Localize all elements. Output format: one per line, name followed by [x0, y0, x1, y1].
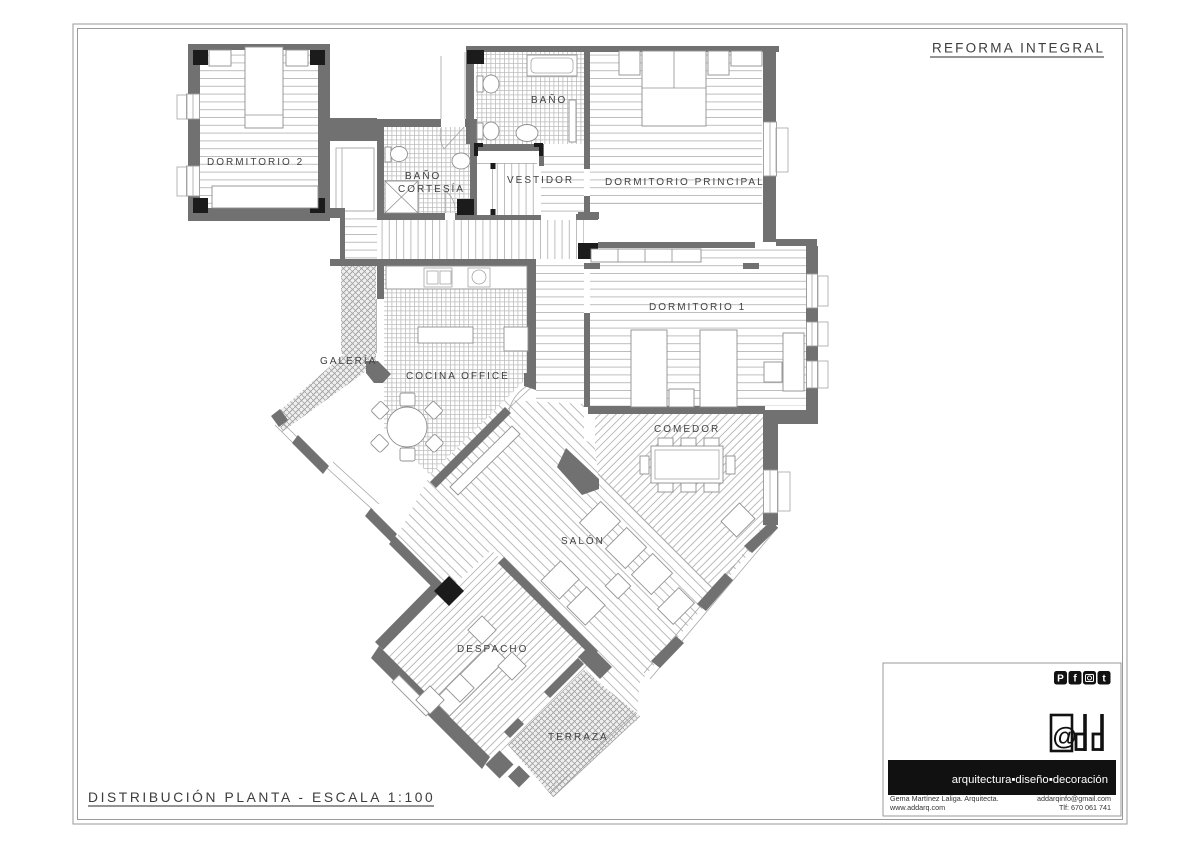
svg-text:COMEDOR: COMEDOR	[654, 424, 720, 435]
svg-text:TERRAZA: TERRAZA	[548, 732, 609, 743]
svg-text:arquitectura▪diseño▪decoración: arquitectura▪diseño▪decoración	[952, 774, 1108, 786]
svg-text:DORMITORIO 2: DORMITORIO 2	[207, 157, 304, 168]
svg-text:addarqinfo@gmail.com: addarqinfo@gmail.com	[1037, 794, 1111, 803]
svg-text:GALERÍA: GALERÍA	[320, 354, 377, 367]
svg-text:Tlf: 670 061 741: Tlf: 670 061 741	[1059, 803, 1111, 812]
svg-text:DESPACHO: DESPACHO	[457, 644, 528, 655]
svg-text:BAÑO: BAÑO	[531, 93, 567, 106]
svg-text:DORMITORIO PRINCIPAL: DORMITORIO PRINCIPAL	[605, 177, 765, 188]
svg-text:DISTRIBUCIÓN PLANTA - ESCALA 1: DISTRIBUCIÓN PLANTA - ESCALA 1:100	[88, 789, 435, 805]
svg-text:BAÑO: BAÑO	[405, 169, 441, 182]
svg-text:CORTESÍA: CORTESÍA	[398, 182, 465, 195]
svg-text:DORMITORIO 1: DORMITORIO 1	[649, 302, 746, 313]
svg-text:SALÓN: SALÓN	[561, 534, 605, 547]
svg-text:VESTIDOR: VESTIDOR	[507, 175, 574, 186]
svg-text:REFORMA INTEGRAL: REFORMA INTEGRAL	[932, 41, 1105, 56]
svg-text:www.addarq.com: www.addarq.com	[889, 803, 945, 812]
svg-text:COCINA OFFICE: COCINA OFFICE	[406, 371, 510, 382]
svg-text:@: @	[1053, 723, 1077, 751]
svg-text:P: P	[1057, 674, 1064, 685]
svg-text:Gema Martínez Laliga. Arquitec: Gema Martínez Laliga. Arquitecta.	[890, 794, 999, 803]
